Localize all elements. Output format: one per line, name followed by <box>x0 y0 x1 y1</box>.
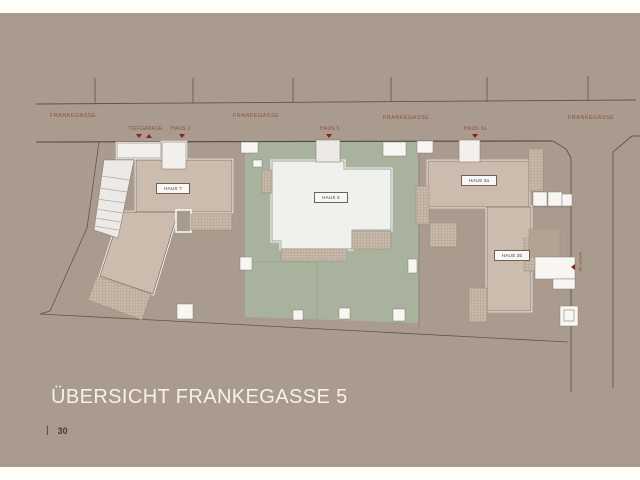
haus-5-terrace-south <box>281 249 347 261</box>
haus-7-terrace-east <box>191 214 232 230</box>
haus-5-terrace-east <box>352 231 391 249</box>
haus-3-court-paving <box>529 229 560 257</box>
site-plan-drawing <box>0 13 640 467</box>
site-plan-canvas <box>0 13 640 467</box>
site-boundary-left <box>40 142 99 314</box>
street-north-line <box>36 100 636 104</box>
haus-5-terrace-west <box>262 170 272 193</box>
street-tick-marks <box>95 76 588 104</box>
site-boundary-right-outer <box>613 136 640 388</box>
haus-3a-entrance <box>459 140 480 162</box>
haus-5-entrance <box>316 140 340 162</box>
haus-7-notch <box>176 210 191 232</box>
garden-shed-left <box>177 304 193 319</box>
brochure-page: FRANKEGASSE FRANKEGASSE FRANKEGASSE FRAN… <box>0 0 640 480</box>
